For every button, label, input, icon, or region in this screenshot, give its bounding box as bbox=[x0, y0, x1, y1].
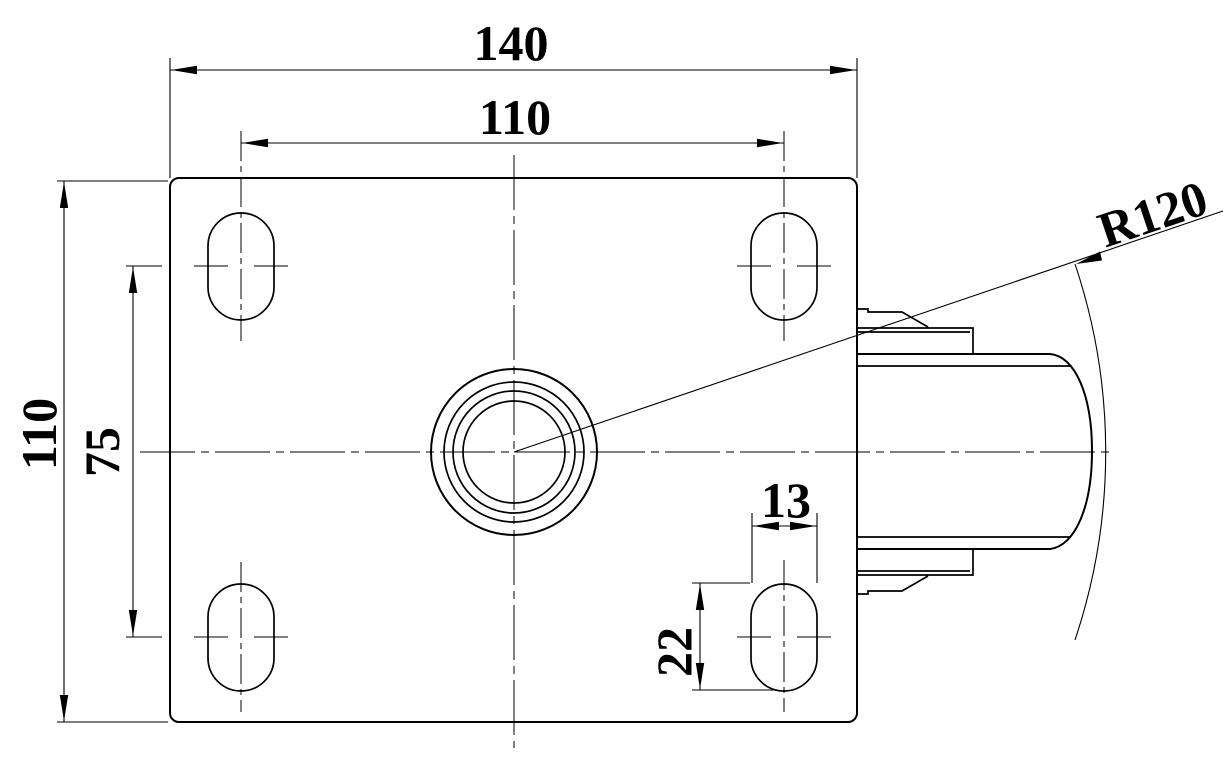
dimension-arrowhead bbox=[242, 139, 268, 147]
dimension-arrowhead bbox=[830, 66, 856, 74]
main-center-lines bbox=[140, 155, 1112, 748]
dimension-arrowhead bbox=[129, 267, 137, 293]
dim-hole-spacing-x: 110 bbox=[241, 89, 784, 147]
dimension-arrowhead bbox=[60, 695, 68, 721]
dimension-arrowhead bbox=[129, 610, 137, 636]
dimension-arrowhead bbox=[696, 584, 704, 610]
dim-hole-spacing-y-label: 75 bbox=[74, 427, 130, 477]
dim-plate-width-label: 140 bbox=[474, 15, 549, 71]
dim-slot-length-label: 22 bbox=[646, 627, 702, 677]
technical-drawing-page: R120 140 110 110 75 13 bbox=[0, 0, 1225, 775]
dimension-arrowhead bbox=[171, 66, 197, 74]
technical-drawing-canvas: R120 140 110 110 75 13 bbox=[0, 0, 1225, 775]
dim-slot-width-label: 13 bbox=[761, 472, 811, 528]
dim-swivel-radius-label: R120 bbox=[1091, 170, 1214, 259]
dimension-arrowhead bbox=[60, 182, 68, 208]
dim-swivel-radius: R120 bbox=[514, 170, 1223, 640]
bracket-step-bottom bbox=[858, 576, 928, 594]
dimension-arrowhead bbox=[757, 139, 783, 147]
dim-hole-spacing-y: 75 bbox=[74, 266, 137, 637]
swivel-radius-arrowhead bbox=[1076, 252, 1102, 265]
slot-center-lines bbox=[126, 131, 831, 712]
bracket-step-top bbox=[858, 309, 928, 327]
dim-hole-spacing-x-label: 110 bbox=[479, 89, 551, 145]
dim-plate-height-label: 110 bbox=[11, 398, 67, 470]
